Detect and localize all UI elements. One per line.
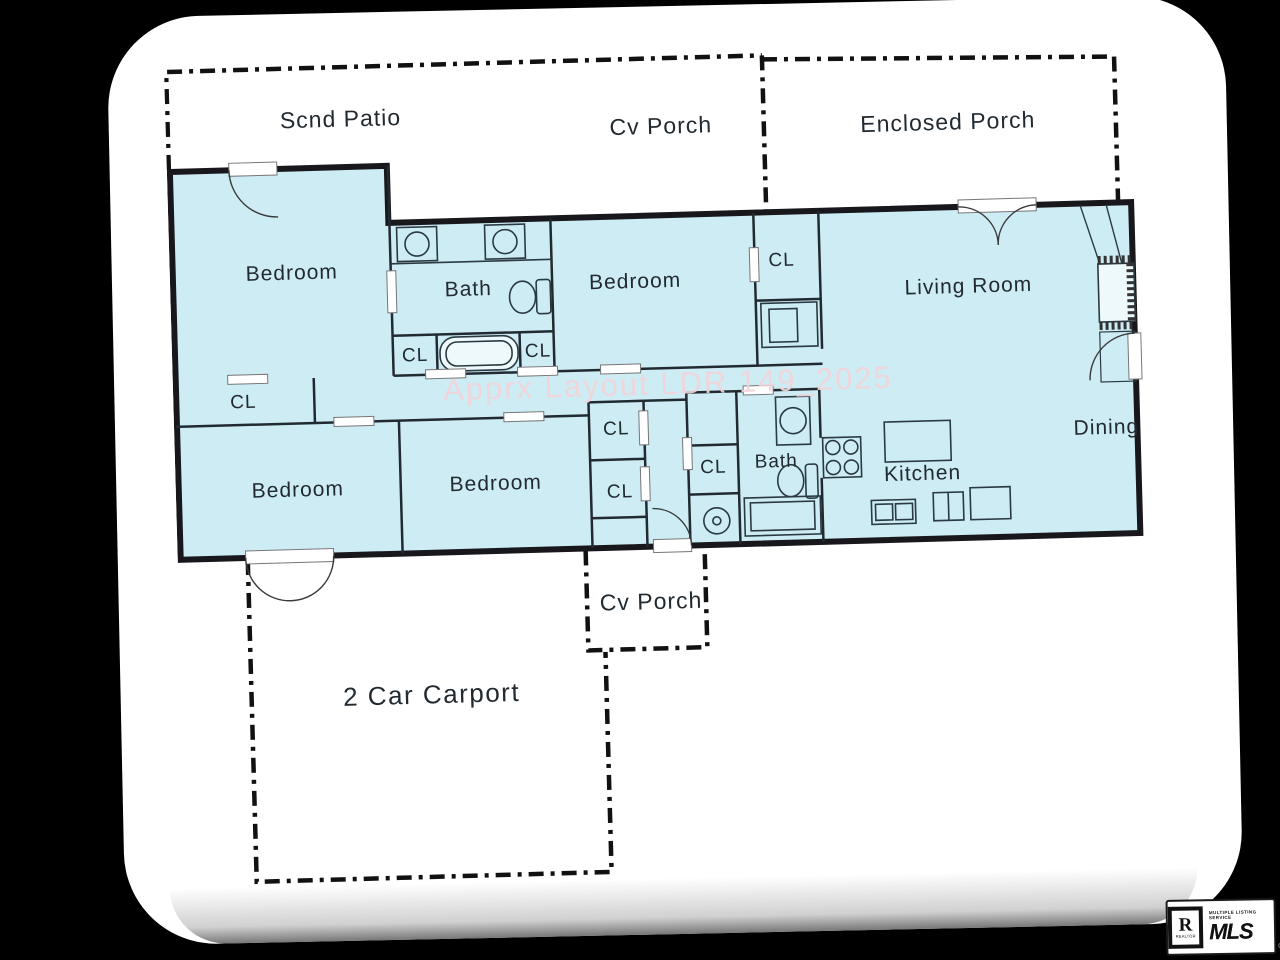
mls-wordmark: MULTIPLE LISTING SERVICE MLS: [1209, 910, 1274, 943]
room-label-living-room: Living Room: [904, 273, 1032, 301]
room-label-cl-bedroom2: CL: [768, 250, 795, 273]
room-label-bath-top: Bath: [444, 277, 492, 302]
room-label-carport: 2 Car Carport: [343, 677, 521, 713]
room-label-cv-porch-bottom: Cv Porch: [599, 587, 702, 617]
floor-plan: Scnd Patio Cv Porch Enclosed Porch Bedro…: [164, 34, 1197, 912]
room-label-bedroom-bm: Bedroom: [449, 471, 542, 498]
screenshot-root: { "watermark": "Apprx Layout LDR 149_202…: [0, 0, 1280, 960]
room-label-bedroom-tl: Bedroom: [245, 260, 338, 287]
room-label-kitchen: Kitchen: [884, 461, 962, 487]
room-label-scnd-patio: Scnd Patio: [280, 104, 402, 134]
mls-text: MLS: [1209, 920, 1253, 943]
room-label-bath-bottom: Bath: [754, 451, 798, 474]
room-label-cl-stack-upper: CL: [603, 418, 630, 441]
room-label-cl-bath-right: CL: [525, 340, 552, 363]
room-label-enclosed-porch: Enclosed Porch: [860, 106, 1036, 138]
room-label-cv-porch-top: Cv Porch: [609, 111, 712, 141]
room-label-cl-bottom: CL: [700, 457, 727, 480]
mls-logo: R REALTOR MULTIPLE LISTING SERVICE MLS ®: [1166, 898, 1277, 956]
room-label-cl-stack-lower: CL: [607, 481, 634, 504]
room-label-dining: Dining: [1073, 415, 1139, 441]
room-label-bedroom-bl: Bedroom: [251, 477, 344, 504]
floor-plan-drawing: [164, 34, 1197, 912]
realtor-r-icon: R REALTOR: [1168, 906, 1204, 949]
realtor-label: REALTOR: [1176, 933, 1196, 938]
room-label-bedroom-tm: Bedroom: [589, 269, 682, 296]
realtor-r-letter: R: [1179, 917, 1193, 934]
room-label-cl-bath-left: CL: [402, 345, 429, 368]
room-label-cl-hall: CL: [230, 392, 257, 415]
